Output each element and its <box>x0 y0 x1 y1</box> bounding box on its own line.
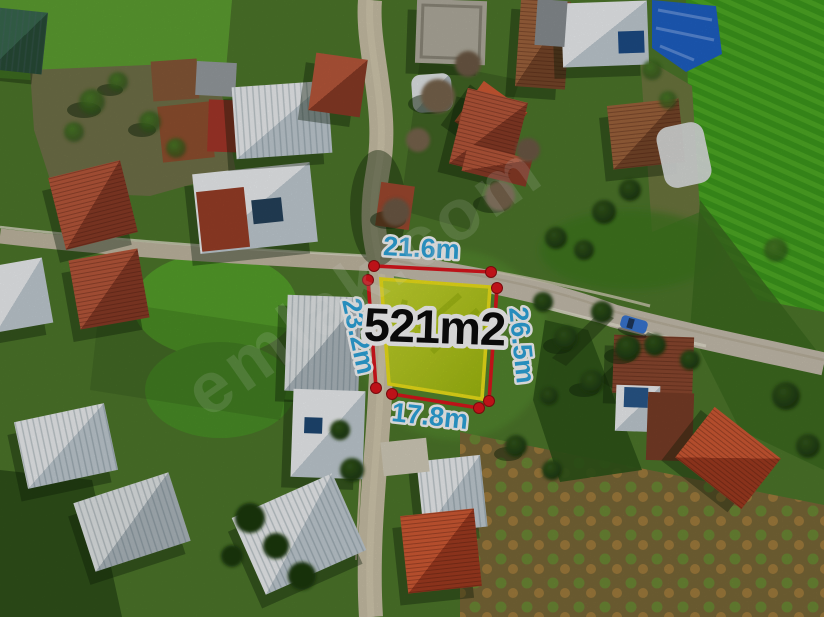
aerial-photo: 21.6m 23.2m 26.5m 17.8m 521m2 emlak.com <box>0 0 824 617</box>
photo-grain <box>0 0 824 617</box>
